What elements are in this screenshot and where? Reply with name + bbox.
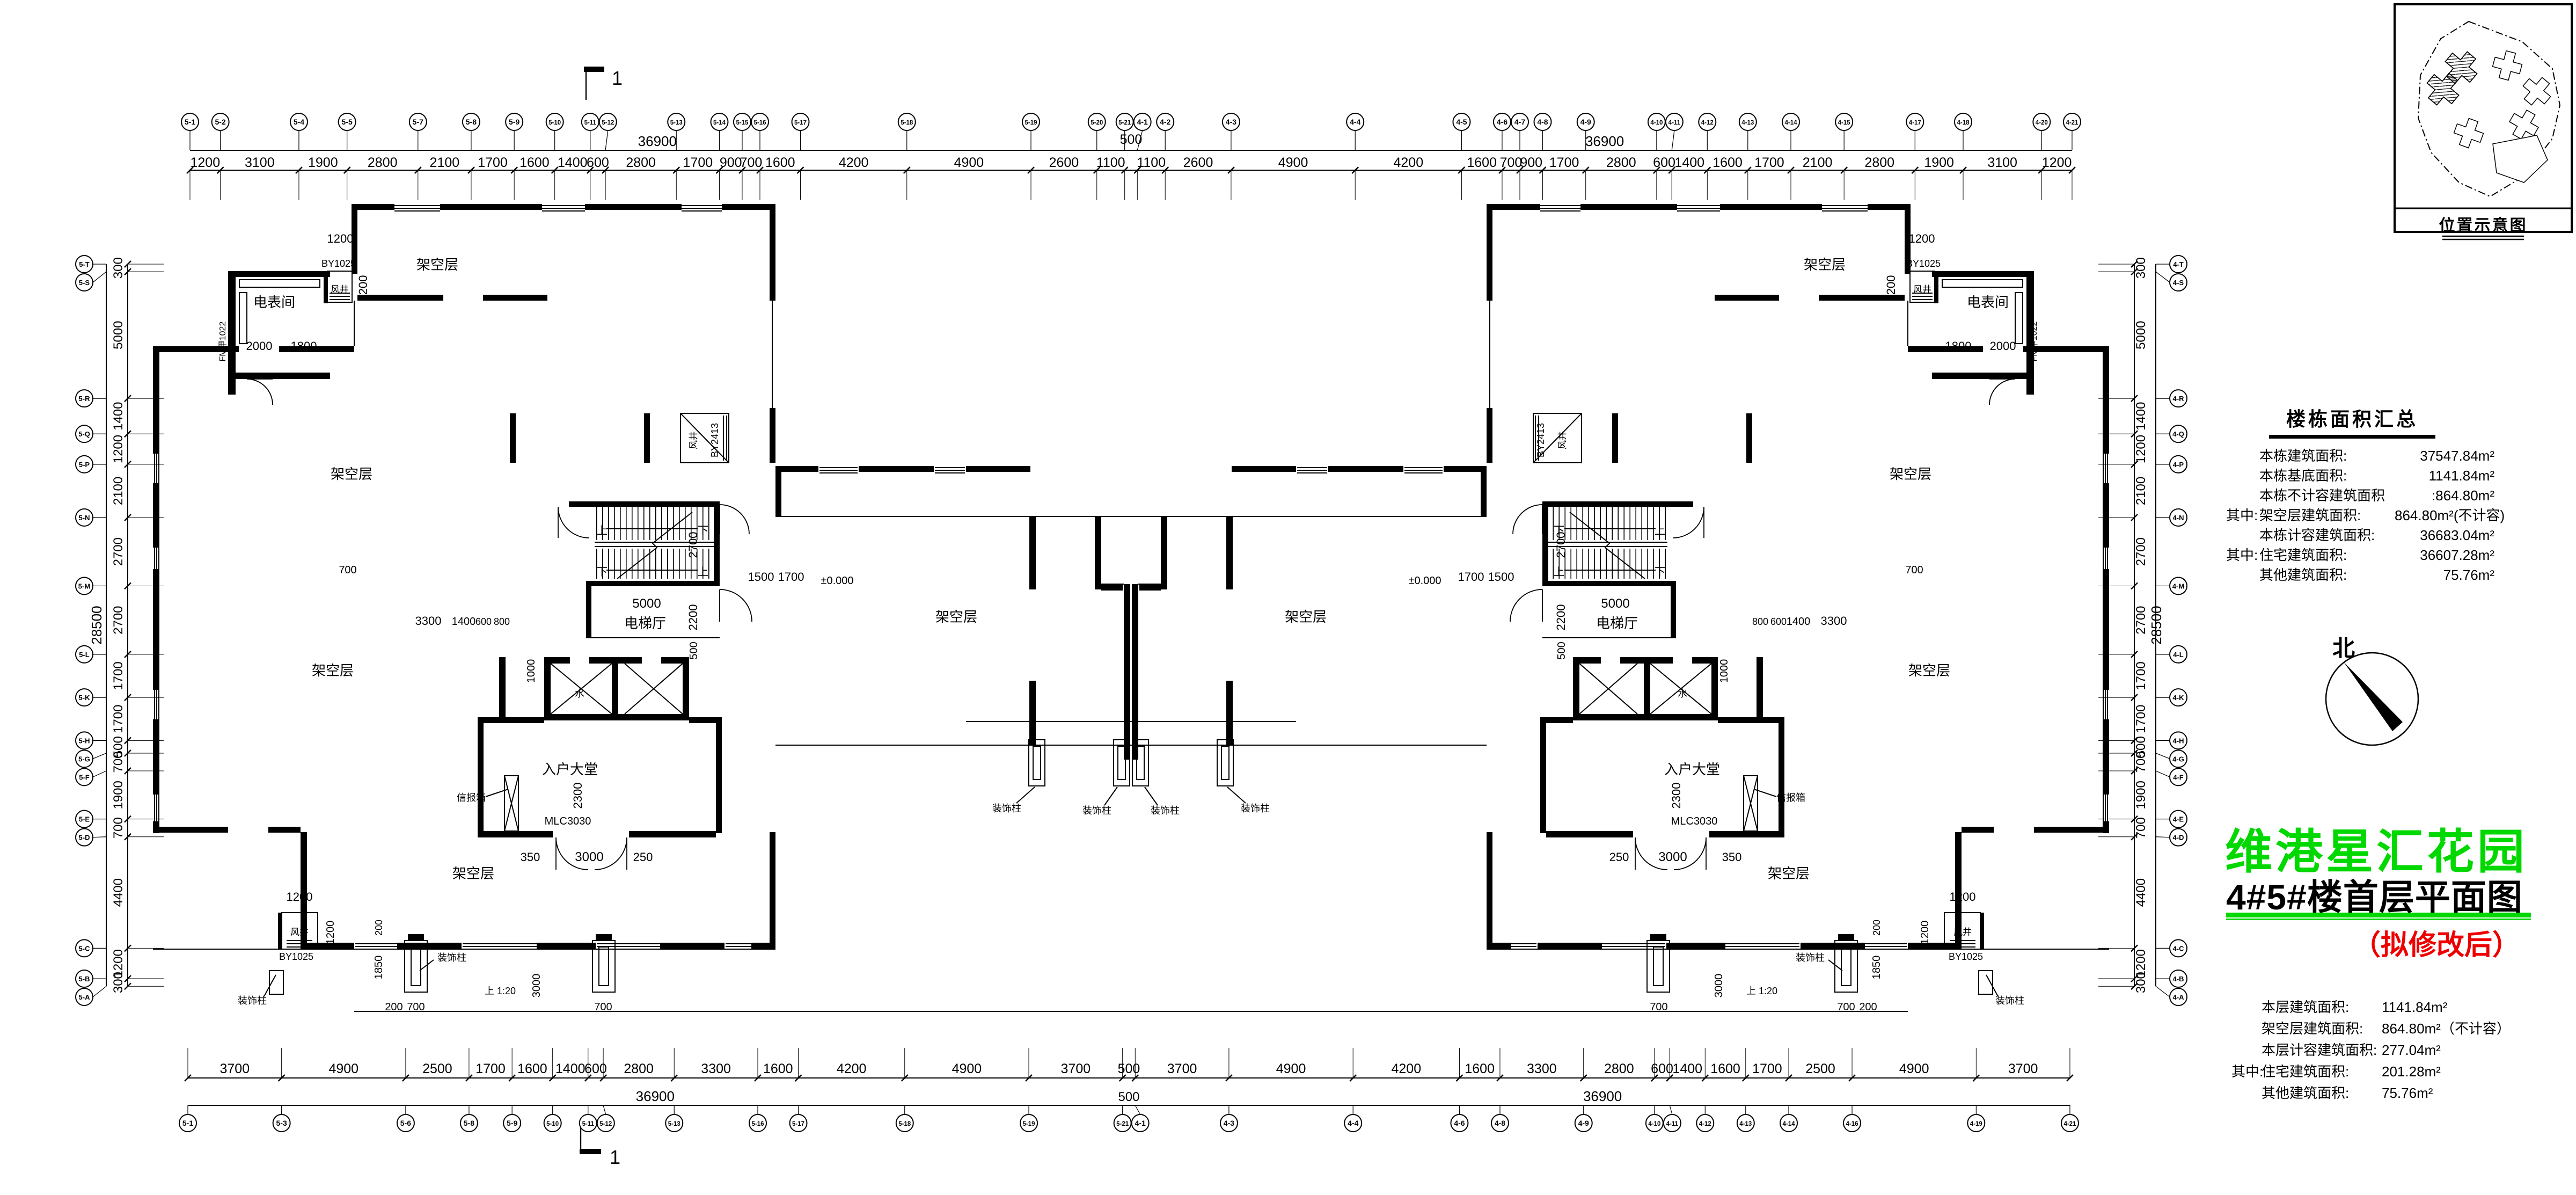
dim-value: 1700 (2134, 661, 2148, 690)
overall-dim: 36900 (1583, 1088, 1622, 1104)
dim-value: 2800 (1606, 155, 1636, 170)
grid-bubble-label: 4-G (2172, 755, 2184, 763)
grid-bubble-label: 4-10 (1648, 1121, 1660, 1127)
grid-bubble-label: 5-T (79, 260, 90, 268)
area-summary-row-pfx (2226, 446, 2259, 466)
grid-bubble-label: 5-K (79, 694, 91, 702)
grid-bubble-label: 4-K (2173, 694, 2185, 702)
plan-label: 入户大堂 (542, 761, 598, 777)
grid-bubble-label: 4-2 (1160, 118, 1170, 126)
plan-label: FM甲1022 (2030, 322, 2039, 362)
plan-label: 1850 (373, 956, 385, 980)
overall-dim: 28500 (89, 606, 105, 644)
dim-value: 1200 (2042, 155, 2072, 170)
plan-label: ±0.000 (821, 575, 853, 587)
grid-bubble-label: 4-C (2173, 944, 2185, 952)
grid-bubble-label: 4-14 (1785, 120, 1798, 126)
bubble-leader (1670, 1105, 1672, 1114)
grid-bubble-label: 5-E (79, 815, 90, 824)
grid-bubble-label: 4-13 (1741, 120, 1754, 126)
grid-bubble-label: 4-10 (1650, 120, 1663, 126)
plan-label: 5000 (632, 596, 661, 611)
dim-value: 4900 (1276, 1061, 1306, 1076)
plan-label: 架空层 (1285, 609, 1327, 625)
grid-bubble-label: 4-12 (1701, 120, 1714, 126)
dim-value: 300 (2134, 972, 2148, 993)
location-map-label: 位置示意图 (2439, 216, 2528, 235)
plan-label: 250 (1609, 850, 1629, 864)
dim-value: 1900 (1924, 155, 1954, 170)
grid-bubble-label: 4-1 (1137, 118, 1148, 126)
grid-bubble-label: 4-R (2173, 395, 2185, 403)
floor-stats-row: 本层计容建筑面积:277.04m² (2231, 1039, 2489, 1061)
plan-label: 架空层 (935, 609, 977, 625)
grid-bubble-label: 4-17 (1909, 120, 1921, 126)
plan-label: 3300 (1821, 614, 1847, 628)
grid-bubble-label: 4-F (2173, 773, 2184, 781)
dim-value: 700 (111, 751, 126, 773)
plan-label: 1500 (1488, 570, 1514, 584)
floor-stats-row-pfx (2231, 1082, 2262, 1104)
grid-bubble-label: 4-E (2173, 815, 2184, 824)
plan-label: 1500 (748, 570, 774, 584)
bubble-leader (93, 753, 106, 759)
grid-bubble-label: 5-18 (901, 120, 913, 126)
dim-value: 1700 (1752, 1061, 1782, 1076)
dim-value: 2100 (111, 477, 126, 505)
bubble-leader (1135, 1105, 1140, 1114)
section-marker-lines (581, 72, 586, 1149)
area-summary-row: 其他建筑面积:75.76m² (2226, 565, 2494, 585)
plan-label: 装饰柱 (238, 995, 267, 1006)
dim-value: 600 (1651, 1061, 1673, 1076)
floor-stats-row: 其他建筑面积:75.76m² (2231, 1082, 2489, 1104)
title-underline-thick (2226, 913, 2531, 917)
plan-label: 600 (475, 616, 492, 627)
plan-label: BY1025 (321, 258, 356, 269)
plan-label: 3000 (575, 850, 603, 864)
plan-label: 电表间 (253, 294, 295, 310)
area-summary-row-val: 37547.84m² (2395, 446, 2494, 466)
dim-value: 2800 (368, 155, 398, 170)
dim-chain-line (190, 150, 2072, 170)
dim-value: 700 (2134, 751, 2148, 773)
grid-bubble-label: 4-18 (1957, 120, 1970, 126)
bubble-leader (2156, 837, 2170, 837)
map-label-underline (2442, 236, 2524, 239)
plan-label: 风井 (1913, 285, 1931, 295)
dim-value: 2100 (2134, 477, 2148, 505)
plan-label: 架空层 (312, 662, 354, 679)
grid-bubble-label: 4-M (2172, 582, 2184, 590)
grid-bubble-label: 5-21 (1116, 1121, 1129, 1127)
dim-value: 4200 (839, 155, 869, 170)
plan-label: 1200 (356, 275, 370, 302)
dim-value: 1700 (1549, 155, 1579, 170)
floor-stats-row-val: 201.28m² (2382, 1061, 2489, 1082)
plan-label: 2200 (686, 604, 700, 631)
grid-bubble-label: 5-F (79, 773, 90, 781)
dim-value: 1900 (2134, 781, 2148, 809)
dim-value: 4200 (1392, 1061, 1422, 1076)
grid-bubble-label: 5-S (79, 279, 90, 287)
dim-value: 300 (2134, 257, 2148, 279)
grid-bubble-label: 5-15 (736, 120, 749, 126)
grid-bubble-label: 5-17 (794, 120, 807, 126)
grid-bubble-label: 4-L (2173, 651, 2184, 659)
dim-value: 1400 (1672, 1061, 1702, 1076)
area-summary-row-val: :864.80m² (2395, 486, 2494, 506)
grid-bubble-label: 4-12 (1699, 1121, 1711, 1127)
plan-label: 风井 (689, 431, 699, 449)
dim-value: 2600 (1049, 155, 1079, 170)
grid-bubble-label: 5-12 (599, 1121, 612, 1127)
plan-label: 装饰柱 (1796, 952, 1825, 963)
grid-bubble-label: 5-G (78, 755, 90, 763)
grid-bubble-label: 5-11 (584, 120, 597, 126)
grid-bubble-label: 5-H (79, 737, 90, 745)
plan-label: 1800 (1945, 339, 1972, 353)
plan-label: 1000 (1718, 659, 1730, 683)
dim-value: 1700 (111, 661, 126, 690)
dim-value: 3700 (1061, 1061, 1091, 1076)
dim-value: 1600 (765, 155, 795, 170)
floor-stats-row-lbl: 本层建筑面积: (2262, 996, 2382, 1018)
grid-bubble-label: 5-P (79, 461, 90, 469)
plan-label: 1850 (1871, 956, 1883, 980)
dim-value: 3700 (220, 1061, 250, 1076)
plan-label: 架空层 (416, 257, 458, 273)
grid-bubble-label: 4-6 (1497, 118, 1507, 126)
dim-value: 1200 (111, 435, 126, 463)
grid-bubble-label: 5-Q (78, 430, 90, 438)
grid-bubble-label: 5-M (78, 582, 90, 590)
grid-bubble-label: 4-20 (2036, 120, 2048, 126)
grid-bubble-label: 5-4 (294, 118, 304, 126)
dim-value: 1600 (763, 1061, 793, 1076)
grid-bubble-label: 5-C (79, 944, 91, 952)
plan-label: 风井 (331, 285, 349, 295)
grid-bubble-label: 5-1 (185, 118, 195, 126)
plan-label: 1000 (525, 659, 537, 683)
grid-bubble-label: 5-10 (546, 1121, 559, 1127)
plan-label: 水 (575, 688, 584, 699)
grid-bubble-label: 5-3 (276, 1119, 287, 1127)
plan-label: 1200 (327, 232, 354, 245)
grid-bubble-label: 4-14 (1783, 1121, 1796, 1127)
area-summary-row: 其中:架空层建筑面积:864.80m²(不计容) (2226, 506, 2494, 526)
area-summary-row: 本栋基底面积:1141.84m² (2226, 466, 2494, 486)
floor-stats-row: 架空层建筑面积:864.80m²（不计容） (2231, 1018, 2489, 1039)
dim-value: 2500 (422, 1061, 452, 1076)
plan-label: 电梯厅 (1596, 615, 1638, 631)
grid-bubble-label: 5-1 (182, 1119, 193, 1127)
plan-label: BY1025 (1949, 951, 1983, 962)
floor-stats-row-val: 864.80m²（不计容） (2382, 1018, 2511, 1039)
grid-bubble-label: 5-13 (668, 1121, 680, 1127)
dim-value: 1700 (478, 155, 508, 170)
plan-label: 200 (1859, 1001, 1877, 1013)
plan-label: 2000 (246, 339, 273, 353)
dim-value: 5000 (111, 320, 126, 349)
grid-bubble-label: 4-3 (1224, 1119, 1234, 1127)
area-summary-row-lbl: 本栋计容建筑面积: (2259, 526, 2395, 545)
plan-label: 风井 (1557, 431, 1568, 449)
dim-value: 700 (2134, 817, 2148, 839)
plan-label: 1200 (1884, 275, 1898, 302)
area-summary-row: 本栋计容建筑面积:36683.04m² (2226, 526, 2494, 545)
grid-bubble-label: 5-13 (670, 120, 683, 126)
dim-value: 4900 (952, 1061, 982, 1076)
grid-bubble-label: 5-12 (602, 120, 614, 126)
floor-stats-table: 本层建筑面积:1141.84m²架空层建筑面积:864.80m²（不计容）本层计… (2231, 996, 2489, 1104)
bubble-leader (2156, 272, 2170, 282)
dim-value: 2800 (1864, 155, 1894, 170)
plan-label: 上 (597, 524, 608, 537)
grid-bubble-label: 5-11 (582, 1121, 595, 1127)
grid-bubble-label: 5-19 (1025, 120, 1037, 126)
revision-note: （拟修改后） (2353, 922, 2520, 963)
bubble-leader (1672, 130, 1674, 150)
dim-value: 3700 (2008, 1061, 2038, 1076)
plan-label: BY2413 (709, 423, 720, 457)
floor-stats-row-val: 75.76m² (2382, 1082, 2489, 1104)
area-summary-rows: 本栋建筑面积:37547.84m²本栋基底面积:1141.84m²本栋不计容建筑… (2226, 446, 2494, 585)
grid-bubble-label: 4-P (2173, 461, 2184, 469)
plan-label: 3000 (531, 974, 543, 998)
grid-bubble-label: 5-17 (792, 1121, 804, 1127)
drawing-sheet: 1 1 北 位置示意图 1200310019002800210017001600… (0, 0, 2576, 1195)
bubble-leader (93, 986, 106, 997)
grid-bubble-label: 4-21 (2066, 120, 2079, 126)
plan-label: 200 (1871, 920, 1882, 936)
grid-bubble-label: 5-20 (1091, 120, 1103, 126)
map-frame (2395, 4, 2572, 232)
dim-value: 1700 (111, 705, 126, 733)
grid-bubble-label: 4-16 (1846, 1121, 1858, 1127)
dim-value: 900 (1520, 155, 1542, 170)
plan-label: 200 (385, 1001, 402, 1013)
dim-value: 2500 (1805, 1061, 1835, 1076)
plan-label: 架空层 (1804, 257, 1846, 273)
grid-bubble-label: 5-18 (898, 1121, 911, 1127)
floor-stats-row-pfx (2231, 996, 2262, 1018)
plan-label: 电表间 (1967, 294, 2009, 310)
bubble-leader (605, 130, 608, 150)
plan-label: 1200 (1950, 890, 1976, 903)
grid-bubble-label: 5-L (79, 651, 90, 659)
plan-label: MLC3030 (1671, 815, 1718, 827)
plan-label: 下 (1655, 566, 1665, 578)
dim-value: 700 (111, 817, 126, 839)
grid-bubble-label: 5-14 (713, 120, 726, 126)
plan-label: 架空层 (452, 865, 494, 881)
plan-label: 上 (1554, 566, 1564, 578)
dim-value: 1400 (555, 1061, 586, 1076)
grid-bubble-label: 4-N (2173, 514, 2184, 522)
grid-bubble-label: 5-16 (753, 120, 766, 126)
plan-label: 架空层 (331, 466, 372, 482)
dim-value: 1700 (475, 1061, 506, 1076)
floor-stats-row-pfx (2231, 1018, 2262, 1039)
dim-value: 1900 (111, 781, 126, 809)
dimension-chains: 1200310019002800210017001600140060028001… (76, 113, 2187, 1132)
area-summary-row-lbl: 架空层建筑面积: (2259, 506, 2395, 526)
dim-value: 700 (1500, 155, 1523, 170)
area-summary-row: 本栋建筑面积:37547.84m² (2226, 446, 2494, 466)
grid-bubble-label: 5-N (79, 514, 90, 522)
area-summary-row-pfx (2226, 486, 2259, 506)
dim-value: 5000 (2134, 320, 2148, 349)
plan-label: 500 (1556, 642, 1568, 659)
grid-bubble-label: 5-2 (215, 118, 226, 126)
grid-bubble-label: 5-R (79, 395, 91, 403)
bubble-leader (2156, 771, 2170, 777)
dim-value: 1400 (558, 155, 588, 170)
area-summary-table: 楼栋面积汇总 本栋建筑面积:37547.84m²本栋基底面积:1141.84m²… (2226, 404, 2494, 585)
floor-stats-row: 其中:住宅建筑面积:201.28m² (2231, 1061, 2489, 1082)
dim-value: 1200 (191, 155, 221, 170)
grid-bubble-label: 5-9 (509, 118, 519, 126)
plan-label: FM甲1022 (218, 322, 228, 362)
dim-value: 2800 (1604, 1061, 1634, 1076)
area-summary-row: 本栋不计容建筑面积:864.80m² (2226, 486, 2494, 506)
dim-value: 300 (111, 257, 126, 279)
grid-bubble-label: 5-9 (507, 1119, 517, 1127)
dim-value: 1700 (2134, 705, 2148, 733)
north-compass: 北 (2326, 636, 2418, 745)
dim-value: 3300 (1527, 1061, 1557, 1076)
overall-dim: 36900 (1585, 133, 1624, 149)
plan-label: 2700 (1554, 532, 1568, 558)
plan-label: 装饰柱 (437, 952, 466, 963)
bubble-leader (93, 771, 106, 777)
plan-label: 800 (494, 616, 510, 627)
plan-label: 700 (1650, 1001, 1667, 1013)
area-summary-row-val: 36607.28m² (2395, 545, 2494, 565)
overall-dim: 500 (1118, 1090, 1139, 1104)
plan-label: 700 (1837, 1001, 1855, 1013)
grid-bubble-label: 5-D (79, 834, 90, 842)
plan-label: 1200 (1909, 232, 1935, 245)
compass-needle (2344, 662, 2403, 731)
dim-value: 2100 (1803, 155, 1833, 170)
dim-value: 300 (111, 972, 126, 993)
dim-value: 1700 (1754, 155, 1784, 170)
area-summary-heading: 楼栋面积汇总 (2269, 404, 2435, 439)
dim-value: 1100 (1096, 155, 1125, 170)
plan-label: 1800 (291, 339, 317, 353)
grid-bubble-label: 4-7 (1514, 118, 1525, 126)
plan-label: 3000 (1713, 974, 1725, 998)
dim-value: 900 (720, 155, 742, 170)
area-summary-row-val: 36683.04m² (2395, 526, 2494, 545)
grid-bubble-label: 4-B (2173, 975, 2184, 983)
section-label-top: 1 (612, 67, 623, 89)
area-summary-row-val: 1141.84m² (2395, 466, 2494, 486)
area-summary-row-pfx: 其中: (2226, 545, 2259, 565)
dim-value: 4900 (1278, 155, 1308, 170)
area-summary-row-pfx (2226, 565, 2259, 585)
area-summary-row-lbl: 本栋基底面积: (2259, 466, 2395, 486)
plan-label: 3000 (1658, 850, 1687, 864)
dim-value: 4900 (328, 1061, 358, 1076)
dim-value: 2700 (2134, 537, 2148, 566)
dim-value: 3300 (701, 1061, 731, 1076)
plan-label: 250 (633, 850, 653, 864)
plan-label: 700 (407, 1001, 425, 1013)
grid-bubble-label: 5-21 (1118, 120, 1131, 126)
location-map: 位置示意图 (2395, 4, 2572, 239)
floor-stats-row: 本层建筑面积:1141.84m² (2231, 996, 2489, 1018)
bubble-leader (93, 272, 106, 282)
plan-label: 700 (594, 1001, 612, 1013)
plan-label: 2700 (686, 532, 700, 558)
grid-bubble-label: 5-5 (342, 118, 353, 126)
grid-bubble-label: 4-5 (1456, 118, 1467, 126)
dim-value: 2600 (1183, 155, 1213, 170)
dim-value: 4900 (1899, 1061, 1929, 1076)
grid-bubble-label: 4-19 (1970, 1121, 1982, 1127)
dim-value: 2800 (624, 1061, 654, 1076)
dim-value: 1400 (2134, 402, 2148, 431)
plan-label: 5000 (1601, 596, 1629, 611)
floor-stats-row-lbl: 住宅建筑面积: (2262, 1061, 2382, 1082)
dim-value: 1700 (683, 155, 713, 170)
dim-value: 700 (740, 155, 763, 170)
dim-value: 600 (587, 155, 609, 170)
dim-value: 3100 (245, 155, 275, 170)
dim-value: 2700 (2134, 606, 2148, 634)
grid-bubble-label: 4-4 (1348, 1119, 1358, 1127)
grid-bubble-label: 5-10 (548, 120, 561, 126)
plan-label: 2000 (1990, 339, 2016, 353)
grid-bubble-label: 4-6 (1454, 1119, 1465, 1127)
plan-label: 装饰柱 (1151, 805, 1180, 816)
dim-value: 2100 (430, 155, 460, 170)
plan-label: BY1025 (279, 951, 313, 962)
dim-value: 1400 (1674, 155, 1704, 170)
plan-label: 1200 (287, 890, 313, 903)
dim-value: 1600 (1713, 155, 1743, 170)
grid-bubble-label: 4-11 (1666, 1121, 1679, 1127)
grid-bubble-label: 4-9 (1580, 118, 1591, 126)
dim-value: 1200 (2134, 435, 2148, 463)
floor-stats-row-pfx (2231, 1039, 2262, 1061)
bubble-leader (93, 837, 106, 837)
plan-label: 装饰柱 (1995, 995, 2024, 1006)
plan-label: 350 (1722, 850, 1742, 864)
dim-value: 500 (1118, 1061, 1140, 1076)
dim-value: 3700 (1167, 1061, 1197, 1076)
dim-value: 4400 (111, 878, 126, 907)
dim-value: 1600 (519, 155, 550, 170)
grid-bubble-label: 4-9 (1578, 1119, 1589, 1127)
dim-value: 600 (584, 1061, 607, 1076)
dim-value: 1600 (1467, 155, 1497, 170)
plan-label: 500 (688, 642, 700, 659)
overall-dim: 36900 (636, 1088, 675, 1104)
floor-stats-row-pfx: 其中: (2231, 1061, 2262, 1082)
area-summary-row-lbl: 本栋不计容建筑面积 (2259, 486, 2395, 506)
floor-stats-row-val: 277.04m² (2382, 1039, 2489, 1061)
section-label-bottom: 1 (610, 1146, 620, 1168)
plan-label: ±0.000 (1408, 575, 1441, 587)
dim-value: 2700 (111, 537, 126, 566)
plan-label: 2200 (1554, 604, 1568, 631)
plan-label: 架空层 (1768, 865, 1810, 881)
dim-value: 4900 (954, 155, 984, 170)
